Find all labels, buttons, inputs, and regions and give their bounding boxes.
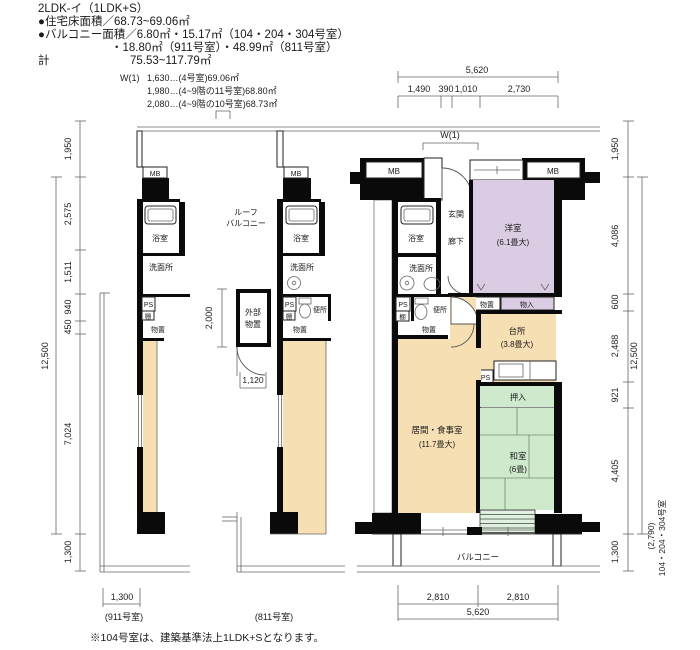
balcony-area-line: ●バルコニー面積／6.80㎡・15.17㎡（104・204・304号室） [38, 27, 349, 41]
right-western-room [472, 180, 554, 294]
dim-top-total: 5,620 [466, 65, 489, 75]
floor-plan-sheet: 2LDK-イ（1LDK+S） ●住宅床面積／68.73~69.06㎡ ●バルコニ… [0, 0, 700, 650]
mid-top-wall-strip [277, 131, 283, 167]
right-balcony-label: バルコニー [457, 552, 499, 562]
w1-bracket-mid [216, 111, 230, 119]
floor-area-line: ●住宅床面積／68.73~69.06㎡ [38, 14, 190, 28]
dim-right-seg-4: 921 [610, 387, 620, 402]
right-western-size: (6.1畳大) [497, 237, 530, 247]
footer-note: ※104号室は、建築基準法上1LDK+Sとなります。 [90, 631, 324, 644]
mid-ext-storage-label1: 外部 [245, 307, 261, 317]
w1-note-line2: 1,980…(4~9階の11号室)68.80㎡ [147, 85, 277, 96]
right-balcony-post-left [393, 534, 401, 566]
dim-left-seg-2: 1,511 [63, 261, 73, 283]
right-storage-label: 物置 [422, 325, 436, 334]
mid-toilet-label: 便所 [313, 305, 327, 314]
dim-right-seg-0: 1,950 [610, 138, 620, 161]
right-toilet-label: 便所 [433, 305, 447, 314]
w1-note-line1: 1,630…(4号室)69.06㎡ [147, 72, 239, 83]
mid-storage-label: 物置 [293, 325, 307, 334]
right-engawa-strip [480, 510, 535, 533]
right-washer-icon [400, 276, 414, 290]
plan-mid: ルーフ バルコニー MB 浴室 洗面所 PS 棚 便所 [204, 131, 345, 622]
dims-left: 1,950 2,575 1,511 940 450 7,024 1,300 12… [40, 121, 86, 571]
right-closet-label: 物入 [520, 300, 534, 309]
dim-left-total: 12,500 [40, 342, 50, 370]
mid-toilet-bowl [300, 304, 311, 318]
right-balcony-post-right [553, 534, 561, 566]
right-mb-right-label: MB [547, 167, 559, 176]
dim-right-extra: (2,790) [646, 522, 656, 549]
right-ps-label: PS [398, 302, 408, 309]
dims-right: 1,950 4,086 600 2,488 921 4,405 1,300 12… [610, 121, 667, 576]
left-shelf-label: 棚 [145, 312, 152, 321]
dim-right-seg-2: 600 [610, 294, 620, 309]
dim-left-seg-4: 450 [63, 319, 73, 334]
mid-washer-icon [288, 277, 301, 290]
plan-right: W(1) MB MB 洋室 (6.1畳大) [350, 130, 600, 572]
total-value: 75.53~117.79㎡ [130, 54, 212, 67]
mid-ps-label: PS [285, 302, 295, 309]
dim-left-seg-3: 940 [63, 299, 73, 314]
dim-bottom-seg-1: 2,810 [507, 592, 530, 602]
right-mb-left-label: MB [388, 167, 400, 176]
right-kitchen-label: 台所 [508, 326, 526, 336]
right-ps2-label: PS [481, 375, 491, 382]
right-void-strip [374, 200, 392, 513]
mid-bath-label: 浴室 [293, 233, 309, 243]
right-wash-label: 洗面所 [409, 263, 433, 273]
mid-shelf-label: 棚 [286, 312, 293, 321]
right-washitsu-label: 和室 [509, 451, 527, 461]
right-washitsu-size: (6畳) [509, 465, 527, 474]
left-storage-label: 物置 [151, 325, 165, 334]
dim-right-extra-rooms: 104・204・304号室 [657, 499, 667, 576]
mid-wash-label: 洗面所 [290, 262, 314, 272]
right-hall-door-arc [448, 276, 466, 294]
left-top-wall-strip [137, 131, 142, 167]
corridor-lines [137, 127, 600, 131]
plan-left: MB 浴室 洗面所 PS 棚 物置 (911号室) [100, 131, 190, 622]
dim-left-balcony-width: 1,300 [111, 592, 134, 602]
dim-left-seg-1: 2,575 [63, 203, 73, 226]
left-corridor [143, 341, 157, 512]
dims-bottom: 2,810 2,810 5,620 [398, 585, 558, 621]
w1-note-line3: 2,080…(4~9階の10号室)68.73㎡ [147, 98, 277, 109]
dim-right-total: 12,500 [629, 342, 639, 370]
dim-right-seg-6: 1,300 [610, 541, 620, 564]
dim-top-seg-3: 2,730 [508, 84, 531, 94]
dim-storage-door: 1,120 [242, 375, 264, 385]
dim-right-seg-1: 4,086 [610, 225, 620, 248]
mid-roof-balcony-label2: バルコニー [226, 219, 266, 228]
mid-living-strip [283, 341, 326, 512]
left-bath-label: 浴室 [152, 233, 168, 243]
dim-left-seg-5: 7,024 [63, 423, 73, 446]
right-toilet-tank [415, 298, 428, 304]
dim-right-seg-3: 2,488 [610, 335, 620, 358]
dim-storage-height: 2,000 [204, 307, 214, 330]
left-wash-label: 洗面所 [149, 262, 173, 272]
mid-mb-label: MB [291, 171, 302, 178]
right-bath-label: 浴室 [408, 233, 424, 243]
right-entrance-door-arc [442, 168, 472, 198]
mid-plan-caption: (811号室) [255, 611, 293, 622]
right-toilet-bowl [415, 305, 427, 320]
right-oshiire-label: 押入 [510, 392, 526, 402]
right-living-label: 居間・食事室 [411, 425, 463, 435]
w1-note: W(1) 1,630…(4号室)69.06㎡ 1,980…(4~9階の11号室)… [120, 72, 277, 119]
plan-title: 2LDK-イ（1LDK+S） [38, 2, 148, 15]
mid-roof-balcony-label1: ルーフ [234, 208, 258, 217]
dim-bottom-seg-0: 2,810 [427, 592, 450, 602]
right-shelf-label: 棚 [399, 312, 406, 321]
left-mb-label: MB [150, 171, 161, 178]
dim-top-seg-1: 390 [438, 84, 453, 94]
right-western-label: 洋室 [504, 223, 522, 233]
dim-top-seg-2: 1,010 [455, 84, 478, 94]
w1-note-label: W(1) [120, 73, 140, 83]
mid-toilet-tank [299, 298, 311, 304]
total-label: 計 [38, 53, 50, 67]
right-w1-label: W(1) [440, 130, 460, 140]
dim-left-seg-6: 1,300 [63, 541, 73, 564]
dim-top-seg-0: 1,490 [408, 84, 431, 94]
right-storage2-label: 物置 [480, 300, 494, 309]
dim-right-seg-5: 4,405 [610, 460, 620, 483]
mid-ext-storage-door-arc [237, 347, 265, 375]
dim-bottom-total: 5,620 [467, 607, 490, 617]
header: 2LDK-イ（1LDK+S） ●住宅床面積／68.73~69.06㎡ ●バルコニ… [38, 2, 349, 67]
balcony-area-line2: ・18.80㎡（911号室）・48.99㎡（811号室） [111, 40, 337, 54]
mid-ext-storage-label2: 物置 [245, 319, 261, 329]
right-entrance-label: 玄関 [448, 209, 464, 219]
left-ps-label: PS [144, 302, 154, 309]
right-living-size: (11.7畳大) [419, 439, 456, 449]
right-kitchen-size: (3.8畳大) [501, 339, 534, 349]
dim-left-seg-0: 1,950 [63, 138, 73, 161]
left-plan-caption: (911号室) [105, 611, 143, 622]
right-hall-label: 廊下 [448, 236, 464, 246]
dims-top: 5,620 1,490 390 1,010 2,730 [398, 65, 558, 108]
dims-bottom-left: 1,300 [103, 588, 140, 607]
right-entrance-niche [424, 158, 442, 200]
